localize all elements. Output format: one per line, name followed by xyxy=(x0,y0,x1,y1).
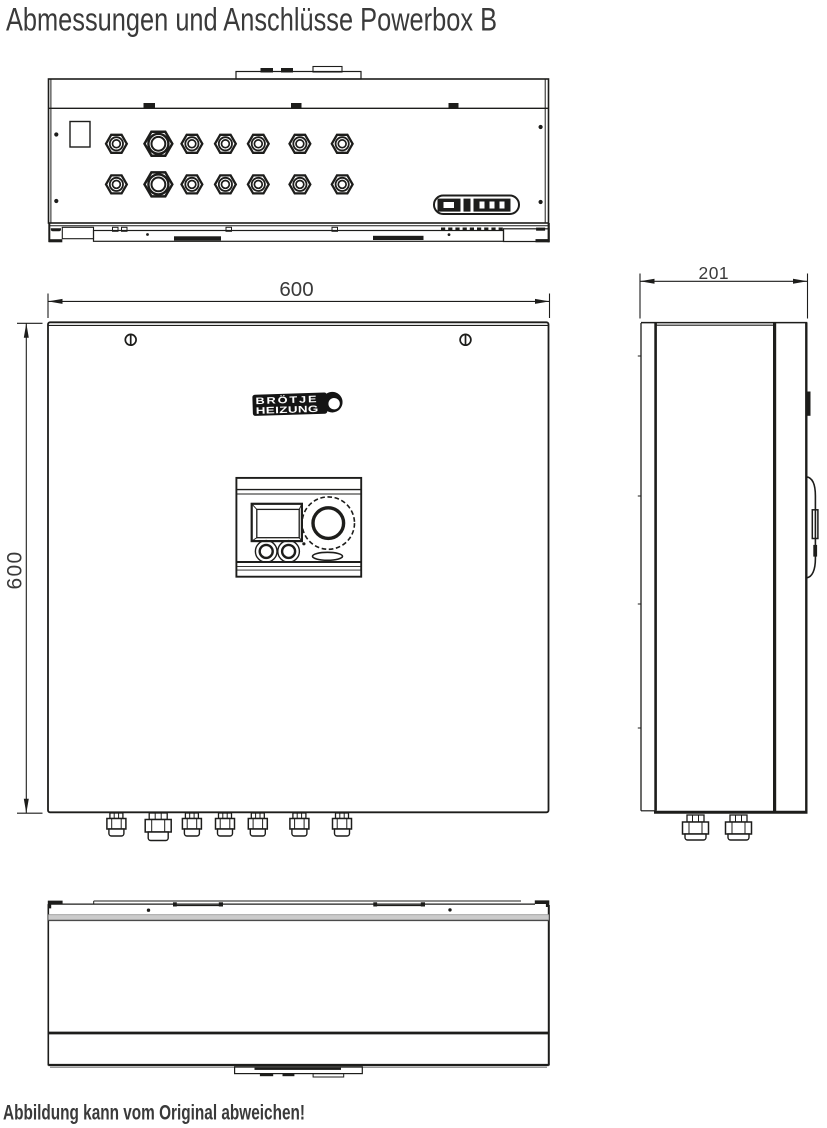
svg-text:201: 201 xyxy=(699,263,730,283)
svg-text:Abmessungen und Anschlüsse Pow: Abmessungen und Anschlüsse Powerbox B xyxy=(6,2,497,38)
svg-text:HEIZUNG: HEIZUNG xyxy=(256,403,319,416)
svg-text:Abbildung kann vom Original ab: Abbildung kann vom Original abweichen! xyxy=(3,1102,305,1125)
svg-text:600: 600 xyxy=(4,551,27,590)
svg-text:600: 600 xyxy=(279,278,313,301)
